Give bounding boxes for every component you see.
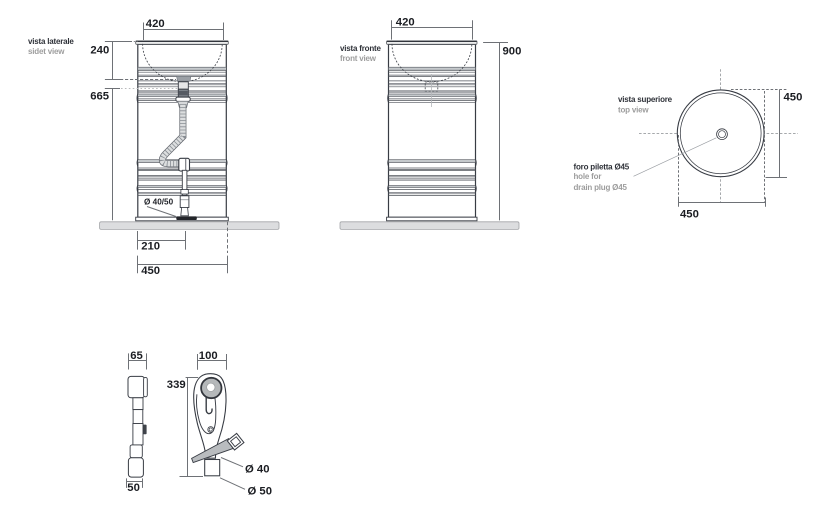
svg-text:Ø 40: Ø 40 <box>245 464 270 476</box>
svg-text:450: 450 <box>141 265 160 277</box>
svg-text:foro piletta Ø45: foro piletta Ø45 <box>574 162 630 171</box>
svg-text:top view: top view <box>618 105 649 114</box>
svg-text:420: 420 <box>146 18 165 30</box>
svg-text:vista laterale: vista laterale <box>28 37 74 46</box>
svg-text:front view: front view <box>340 54 377 63</box>
svg-text:Ø 50: Ø 50 <box>248 486 273 498</box>
svg-text:vista fronte: vista fronte <box>340 44 381 53</box>
svg-text:240: 240 <box>90 45 109 57</box>
svg-text:sidet view: sidet view <box>28 47 65 56</box>
svg-text:900: 900 <box>503 46 522 58</box>
svg-text:665: 665 <box>90 90 109 102</box>
svg-text:drain plug Ø45: drain plug Ø45 <box>574 183 628 192</box>
svg-text:339: 339 <box>167 379 186 391</box>
svg-text:50: 50 <box>127 482 140 494</box>
svg-text:vista superiore: vista superiore <box>618 95 673 104</box>
svg-text:Ø 40/50: Ø 40/50 <box>144 198 174 207</box>
svg-text:450: 450 <box>680 208 699 220</box>
svg-text:450: 450 <box>784 91 803 103</box>
svg-text:210: 210 <box>141 240 160 252</box>
svg-text:420: 420 <box>396 17 415 29</box>
svg-text:hole for: hole for <box>574 172 602 181</box>
